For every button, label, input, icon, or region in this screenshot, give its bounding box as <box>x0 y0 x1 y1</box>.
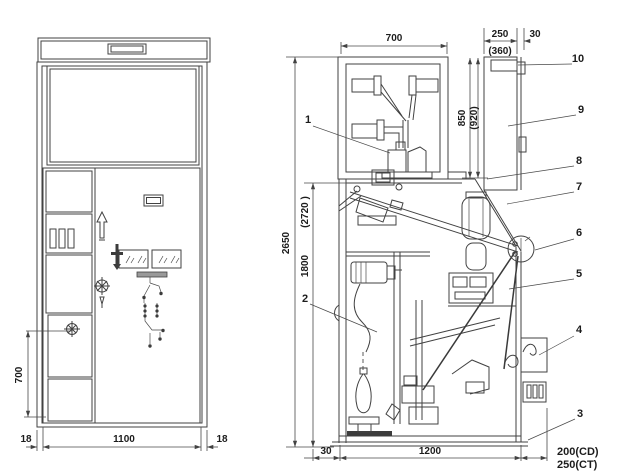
dim-label: (360) <box>488 46 511 57</box>
front-main-door[interactable] <box>94 168 200 423</box>
switchgear-drawing: 700 18 1100 18 <box>0 0 628 474</box>
dim-label: 30 <box>320 446 332 457</box>
dim-label: 700 <box>386 33 403 44</box>
dim-label: 250(CT) <box>557 459 598 471</box>
cable-run <box>354 284 370 352</box>
door-handle-bump <box>335 305 340 321</box>
callout-7: 7 <box>576 181 582 193</box>
dim-label: 250 <box>492 29 509 40</box>
side-dim-busbar-width: 700 <box>341 33 447 54</box>
rear-attachments <box>521 338 547 402</box>
dim-label: (2720 ) <box>300 196 311 228</box>
side-dim-bottom: 30 1200 200(CD) 250(CT) <box>304 408 599 471</box>
dim-label: 30 <box>529 29 541 40</box>
panel-lock-icon[interactable] <box>111 244 123 270</box>
bus-insulator <box>352 79 374 92</box>
dim-label: 2650 <box>281 231 292 254</box>
busbar-compartment <box>338 57 448 179</box>
dim-label: 700 <box>14 366 25 383</box>
side-view: 700 250 30 (360) 850 (920) 2650 (2720 ) … <box>281 28 599 471</box>
rear-top-compartment <box>484 57 526 190</box>
callout-8: 8 <box>576 155 582 167</box>
mimic-diagram <box>119 250 181 348</box>
roller <box>396 184 402 190</box>
front-upper-door[interactable] <box>47 66 199 165</box>
operation-knob-icon[interactable] <box>64 321 80 337</box>
indicator-lamp-icon <box>50 229 56 248</box>
callout-1: 1 <box>305 114 311 126</box>
callout-10: 10 <box>572 53 584 65</box>
withdrawal-ramp <box>350 192 518 252</box>
side-dim-rear-height: 850 (920) <box>457 58 488 178</box>
dim-label: 18 <box>20 434 32 445</box>
dim-label: 850 <box>457 109 468 126</box>
dim-label: 18 <box>216 434 228 445</box>
dim-label: 1800 <box>300 254 311 277</box>
front-indicator-panel <box>46 214 92 253</box>
callout-3: 3 <box>577 408 583 420</box>
dim-label: (920) <box>469 106 480 129</box>
relief-flap <box>491 60 517 71</box>
front-left-panel-2 <box>46 255 92 313</box>
support-insulator <box>349 368 379 432</box>
front-left-panel-1 <box>46 171 92 212</box>
indicator-lamp-icon <box>68 229 74 248</box>
rotary-knob-icon[interactable] <box>94 277 110 308</box>
callout-9: 9 <box>578 104 584 116</box>
bus-insulator <box>416 79 438 92</box>
front-body <box>37 62 207 427</box>
callout-5: 5 <box>576 268 582 280</box>
interlock-joint <box>508 236 534 262</box>
busbar-symbol <box>137 272 167 277</box>
earth-switch-bracket <box>452 360 489 394</box>
hook-detail <box>523 344 536 355</box>
callout-2: 2 <box>302 293 308 305</box>
current-transformer <box>449 192 493 303</box>
side-dim-rear-top: 250 30 (360) <box>484 28 541 57</box>
guide-rail <box>346 252 430 256</box>
front-top-cap <box>38 38 210 62</box>
handle-arrow-icon[interactable] <box>97 212 107 240</box>
door-latch <box>519 137 526 152</box>
drawing-canvas: 700 18 1100 18 <box>0 0 628 474</box>
side-body <box>330 170 528 446</box>
indicator-lamp-icon <box>59 229 65 248</box>
callout-4: 4 <box>576 324 583 336</box>
bus-support <box>396 142 405 150</box>
front-left-column <box>43 168 95 423</box>
front-view: 700 18 1100 18 <box>14 38 228 451</box>
busbar-assembly <box>352 76 438 178</box>
front-left-panel-3 <box>48 379 92 421</box>
front-dim-width: 18 1100 18 <box>20 427 228 451</box>
dim-label: 1100 <box>113 434 135 445</box>
single-line-diagram <box>142 277 164 348</box>
dim-label: 1200 <box>419 446 442 457</box>
internals <box>339 184 534 432</box>
dim-label: 200(CD) <box>557 446 599 458</box>
callout-6: 6 <box>576 227 582 239</box>
bus-insulator <box>352 124 377 138</box>
